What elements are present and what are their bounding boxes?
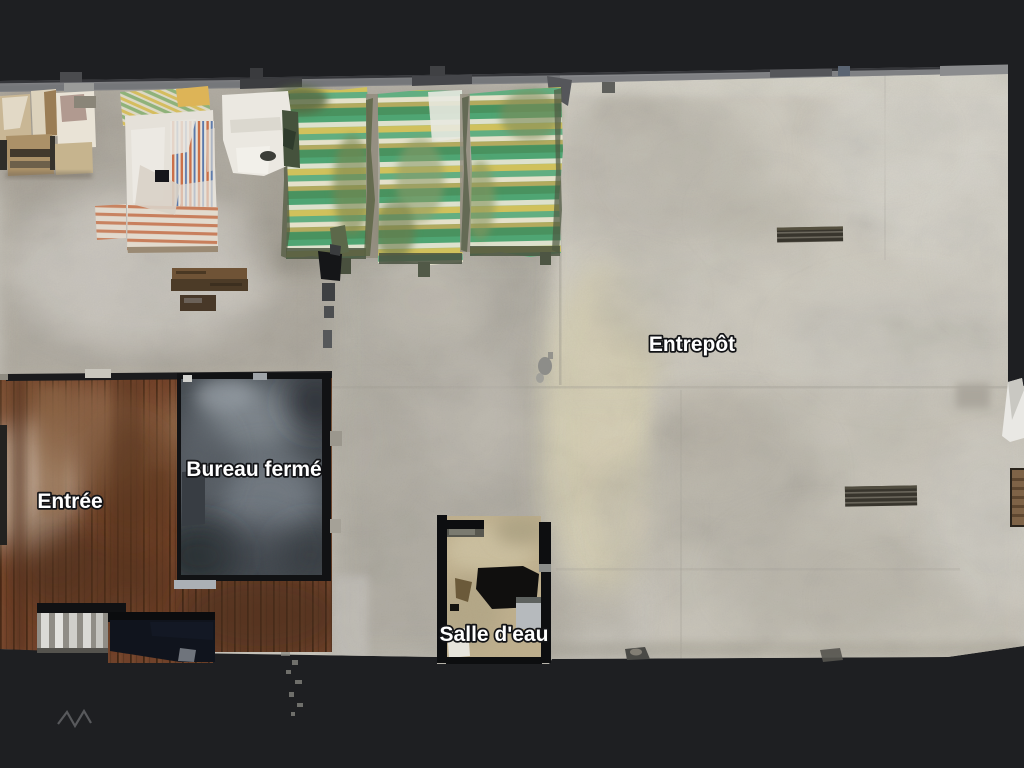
svg-text:Salle d'eau: Salle d'eau <box>440 623 549 646</box>
svg-text:Entrée: Entrée <box>37 490 102 513</box>
svg-text:Entrepôt: Entrepôt <box>649 333 735 356</box>
svg-text:Bureau fermé: Bureau fermé <box>186 458 321 481</box>
